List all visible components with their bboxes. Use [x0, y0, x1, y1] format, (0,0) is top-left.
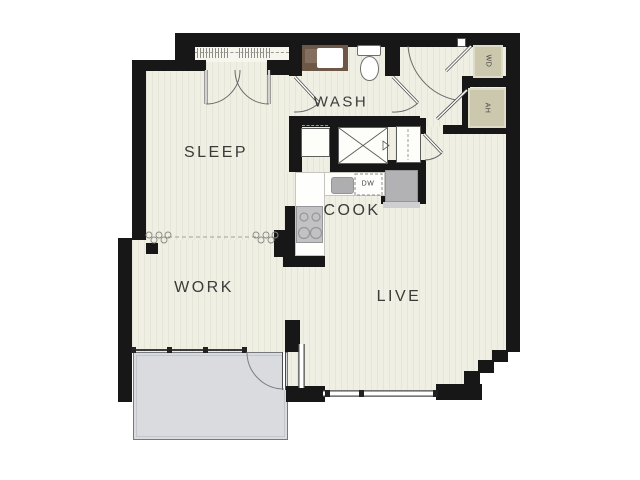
hall-live-door	[424, 134, 442, 160]
wash-room-label: WASH	[314, 94, 368, 111]
x-closet-cross	[339, 128, 389, 163]
live-room-label: LIVE	[377, 288, 422, 306]
curtain-coil	[146, 232, 171, 243]
balcony-window-wall	[131, 347, 247, 353]
curtain-coil	[253, 232, 278, 243]
bath-hall-door	[392, 77, 418, 112]
air-handler-door	[437, 90, 467, 119]
plan-linework	[0, 0, 640, 480]
washer-dryer-door	[446, 46, 471, 71]
dishwasher-label: DW	[362, 181, 375, 188]
work-room-label: WORK	[174, 279, 234, 297]
washer-dryer-label: WD	[485, 55, 492, 68]
floor-plan: SLEEP WASH COOK WORK LIVE DW WD AH	[0, 0, 640, 480]
closet-double-door	[206, 70, 269, 104]
air-handler-label: AH	[484, 103, 491, 114]
sleep-room-label: SLEEP	[184, 144, 248, 162]
stove-burners	[299, 213, 322, 239]
entry-door-swing	[408, 46, 456, 100]
cook-room-label: COOK	[323, 202, 380, 220]
live-south-window	[323, 390, 438, 397]
balcony-door	[247, 352, 284, 390]
